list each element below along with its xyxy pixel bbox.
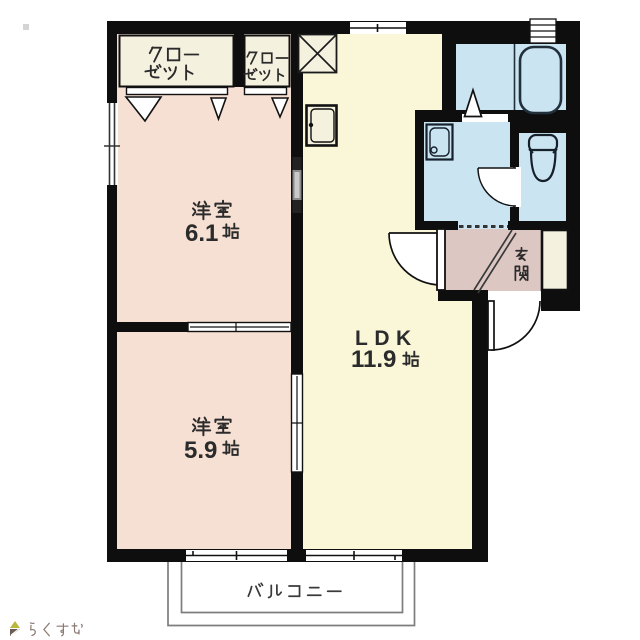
svg-text:6.1: 6.1 [185, 220, 218, 247]
svg-text:5.9: 5.9 [184, 437, 217, 464]
svg-text:11.9: 11.9 [351, 346, 396, 373]
